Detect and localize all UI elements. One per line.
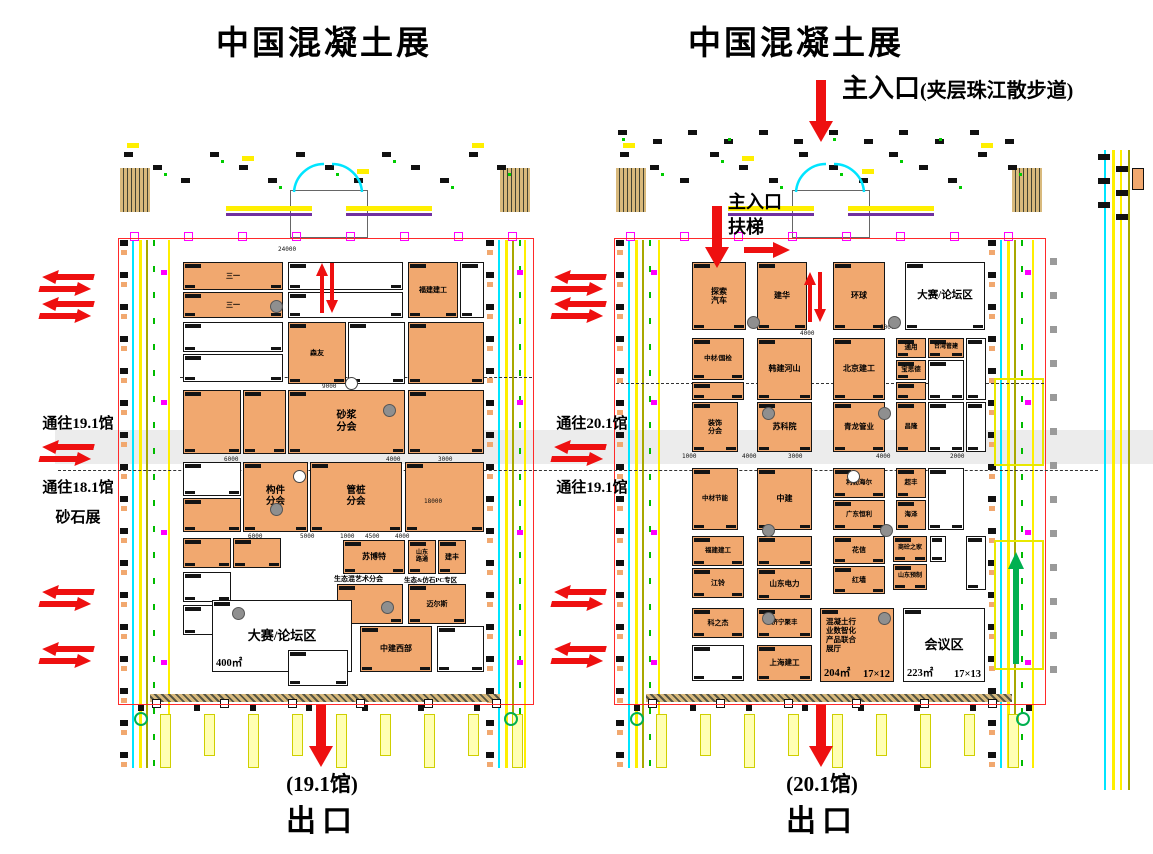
cad-clutter <box>474 705 480 711</box>
cad-clutter <box>497 165 506 170</box>
booth-area-mark <box>290 681 300 684</box>
green-mark <box>134 712 148 726</box>
pillar-white <box>847 470 860 483</box>
booth-number-mark <box>350 324 366 328</box>
booth <box>460 262 484 318</box>
booth <box>243 390 286 454</box>
booth-size-mark <box>391 313 401 316</box>
booth-label: 超丰 <box>897 469 925 497</box>
stair-block <box>1012 168 1042 212</box>
stair-block <box>616 168 646 212</box>
booth <box>233 538 281 568</box>
booth <box>966 536 986 590</box>
pillar <box>747 316 760 329</box>
booth: 会议区223㎡17×13 <box>903 608 985 682</box>
stair-block <box>120 168 150 212</box>
booth-area-mark <box>410 379 420 382</box>
dimension-label: 4000 <box>742 453 756 460</box>
up-down-arrow-pair <box>316 263 338 318</box>
pillar <box>888 316 901 329</box>
cad-clutter <box>653 139 662 144</box>
pillar <box>383 404 396 417</box>
cad-clutter <box>970 705 976 711</box>
green-mark <box>504 712 518 726</box>
booth-area-mark <box>930 525 940 528</box>
booth-number-mark <box>339 586 355 590</box>
gray-square <box>1050 530 1057 537</box>
booth-number-mark <box>290 652 306 656</box>
booth <box>757 536 812 566</box>
booth: 三一 <box>183 262 283 290</box>
booth: 中材/国检 <box>692 338 744 380</box>
cad-clutter <box>210 152 219 157</box>
inner-entrance-line2: 扶梯 <box>728 215 782 240</box>
pillar-white <box>345 377 358 390</box>
dimension-label: 3000 <box>438 456 452 463</box>
booth-label: 花信 <box>834 537 884 563</box>
booth-area: 223㎡ <box>907 665 933 680</box>
booth-label: 广东恒利 <box>834 501 884 529</box>
booth-number-mark <box>930 470 946 474</box>
booth: 通用 <box>896 338 926 358</box>
gray-square <box>1050 428 1057 435</box>
cad-clutter <box>279 186 282 189</box>
booth <box>183 538 231 568</box>
booth: 广东恒利 <box>833 500 885 530</box>
booth-label: 苏博特 <box>344 541 404 573</box>
booth: 管桩 分会 <box>310 462 402 532</box>
gray-square <box>1050 666 1057 673</box>
cad-clutter <box>794 139 803 144</box>
cad-clutter <box>661 173 664 176</box>
booth-label: 红墙 <box>834 567 884 593</box>
booth-area-mark <box>439 667 449 670</box>
cad-clutter <box>239 165 248 170</box>
booth <box>183 322 283 352</box>
booth-label: 台湾管建 <box>929 339 963 357</box>
booth: 超丰 <box>896 468 926 498</box>
booth-label: 山东预制 <box>894 565 926 589</box>
booth-area-mark <box>185 347 195 350</box>
booth: 迈尔斯 <box>408 584 466 624</box>
exit-right-word: 出口 <box>742 796 902 840</box>
booth-number-mark <box>694 384 710 388</box>
booth-label: 北京建工 <box>834 339 884 399</box>
booth-size-mark <box>336 681 346 684</box>
cad-clutter <box>948 178 957 183</box>
booth-label: 山东电力 <box>758 569 811 599</box>
gray-square <box>1050 632 1057 639</box>
booth-number-mark <box>694 647 710 651</box>
dimension-label: 6000 <box>248 533 262 540</box>
booth-number-mark <box>968 538 982 542</box>
booth <box>183 462 241 496</box>
label-to-hall-20-1: 通往20.1馆 <box>532 412 652 433</box>
booth-label: 环球 <box>834 263 884 329</box>
cad-clutter <box>634 705 640 711</box>
booth-size-mark <box>952 395 962 398</box>
pillar <box>878 407 891 420</box>
booth <box>437 626 484 672</box>
cad-clutter <box>138 705 144 711</box>
booth-label: 宝思德 <box>897 361 925 379</box>
booth-area-mark <box>290 313 300 316</box>
booth-number-mark <box>290 294 306 298</box>
booth-label: 科之杰 <box>693 609 743 637</box>
dimension-label: 4000 <box>395 533 409 540</box>
walkway-violet <box>226 213 312 216</box>
cad-clutter <box>1098 154 1110 160</box>
booth-label: 福建建工 <box>409 263 457 317</box>
cad-clutter <box>864 139 873 144</box>
booth-dimensions: 17×12 <box>863 669 890 680</box>
booth: 红墙 <box>833 566 885 594</box>
booth-area-mark <box>407 527 417 530</box>
pillar-white <box>293 470 306 483</box>
booth-number-mark <box>185 324 201 328</box>
gray-square <box>1050 496 1057 503</box>
booth: 福建建工 <box>692 536 744 566</box>
gray-square <box>1050 360 1057 367</box>
booth-area-mark <box>290 285 300 288</box>
booth: 大赛/论坛区 <box>905 262 985 330</box>
booth <box>408 390 484 454</box>
column-bar <box>876 714 887 756</box>
booth: 环球 <box>833 262 885 330</box>
cad-clutter <box>739 165 748 170</box>
booth-size-mark <box>274 449 284 452</box>
inner-entrance-line1: 主入口 <box>728 190 782 215</box>
booth-number-mark <box>185 356 201 360</box>
booth: 韩建河山 <box>757 338 812 400</box>
booth: 宝思德 <box>896 360 926 380</box>
right-arrow <box>744 240 790 265</box>
booth: 科之杰 <box>692 608 744 638</box>
cad-clutter <box>1005 139 1014 144</box>
double-swap-arrow <box>36 585 96 616</box>
booth-area-mark <box>694 395 704 398</box>
edge-cyan-line <box>1104 150 1106 790</box>
cad-clutter <box>889 152 898 157</box>
hall-20-title: 中国混凝土展 <box>688 16 904 64</box>
gray-square <box>1050 394 1057 401</box>
booth-area-mark <box>185 449 195 452</box>
booth-number-mark <box>439 628 455 632</box>
booth-label: 昌隆 <box>897 403 925 451</box>
booth <box>928 468 964 530</box>
booth: 森友 <box>288 322 346 384</box>
booth-area-mark <box>185 630 195 633</box>
cad-clutter <box>759 130 768 135</box>
booth-number-mark <box>235 540 251 544</box>
cad-clutter <box>939 138 942 141</box>
column-bar <box>380 714 391 756</box>
column-bar <box>204 714 215 756</box>
pillar <box>270 300 283 313</box>
cad-clutter <box>296 152 305 157</box>
booth: 昌隆 <box>896 402 926 452</box>
booth-number-mark <box>407 464 423 468</box>
booth <box>930 536 946 562</box>
gray-square <box>1050 564 1057 571</box>
booth-number-mark <box>759 538 775 542</box>
cad-clutter <box>1026 705 1032 711</box>
booth-area-mark <box>694 676 704 679</box>
cad-clutter <box>1132 168 1144 190</box>
booth-area-mark <box>245 449 255 452</box>
cad-clutter <box>1116 214 1128 220</box>
booth: 青龙管业 <box>833 402 885 452</box>
booth-label: 中建西部 <box>361 627 431 671</box>
walkway-bar <box>848 206 934 211</box>
booth-label: 通用 <box>897 339 925 357</box>
booth-size-mark <box>472 449 482 452</box>
dimension-label: 3000 <box>788 453 802 460</box>
booth-area-mark <box>932 557 942 560</box>
exit-right-hall: (20.1馆) <box>742 768 902 798</box>
booth <box>896 382 926 400</box>
booth-label: 装饰 分会 <box>693 403 737 451</box>
booth <box>183 354 283 382</box>
booth: 建丰 <box>438 540 466 574</box>
main-entrance-note: (夹层珠江散步道) <box>920 80 1073 102</box>
pillar <box>762 612 775 625</box>
floor-plan-page: 中国混凝土展 中国混凝土展 主入口(夹层珠江散步道) 主入口 扶梯 通往19.1… <box>0 0 1153 854</box>
booth-label: 森友 <box>289 323 345 383</box>
green-up-arrow <box>1008 552 1024 669</box>
cad-clutter <box>710 152 719 157</box>
double-swap-arrow <box>548 297 608 328</box>
column-bar <box>656 714 667 768</box>
booth-number-mark <box>930 362 946 366</box>
entrance-fan-arc <box>332 160 364 199</box>
dimension-label: 4000 <box>800 330 814 337</box>
booth-label: 砂浆 分会 <box>289 391 404 453</box>
booth-size-mark <box>219 563 229 566</box>
dimension-label: 1000 <box>682 453 696 460</box>
booth-size-mark <box>952 525 962 528</box>
booth: 江铃 <box>692 568 744 598</box>
booth-size-mark <box>391 619 401 622</box>
booth: 山东 路通 <box>408 540 436 574</box>
booth <box>288 292 403 318</box>
booth: 山东电力 <box>757 568 812 600</box>
booth-area-mark <box>185 563 195 566</box>
cad-clutter <box>268 178 277 183</box>
column-bar <box>424 714 435 768</box>
booth-label: 大赛/论坛区 <box>906 263 984 329</box>
booth-area-mark <box>185 597 195 600</box>
booth-size-mark <box>269 563 279 566</box>
booth-label: 福建建工 <box>693 537 743 565</box>
booth-label: 江铃 <box>693 569 743 597</box>
dimension-label: 4000 <box>386 456 400 463</box>
cad-clutter <box>194 705 200 711</box>
booth-number-mark <box>462 264 478 268</box>
booth <box>692 645 744 681</box>
booth <box>966 338 986 400</box>
walkway-bar <box>226 206 312 211</box>
booth-size-mark <box>732 395 742 398</box>
walkway-violet <box>346 213 432 216</box>
booth-area-mark <box>235 563 245 566</box>
booth-dimensions: 17×13 <box>954 669 981 680</box>
booth-number-mark <box>932 538 942 542</box>
booth: 三一 <box>183 292 283 318</box>
cad-clutter <box>1116 166 1128 172</box>
booth-size-mark <box>472 667 482 670</box>
booth: 海泽 <box>896 500 926 530</box>
column-bar <box>160 714 171 768</box>
booth-size-mark <box>229 491 239 494</box>
cad-clutter <box>690 705 696 711</box>
cad-clutter <box>127 143 139 148</box>
booth-area: 400㎡ <box>216 655 242 670</box>
cad-clutter <box>221 160 224 163</box>
booth-size-mark <box>952 447 962 450</box>
booth-label: 三一 <box>184 263 282 289</box>
cad-clutter <box>959 186 962 189</box>
green-mark <box>630 712 644 726</box>
double-swap-arrow <box>548 642 608 673</box>
column-bar <box>336 714 347 768</box>
booth: 台湾管建 <box>928 338 964 358</box>
column-bar <box>292 714 303 756</box>
exit-left-hall: (19.1馆) <box>242 768 402 798</box>
booth-area-mark <box>968 585 978 588</box>
booth-label: 三一 <box>184 293 282 317</box>
booth-label: 上海建工 <box>758 646 811 680</box>
cad-clutter <box>769 178 778 183</box>
cad-clutter <box>650 165 659 170</box>
booth-number-mark <box>410 324 426 328</box>
dimension-label: 5000 <box>300 533 314 540</box>
column-bar <box>964 714 975 756</box>
edge-olive-line <box>1128 150 1130 790</box>
booth-size-mark <box>391 285 401 288</box>
dimension-label: 6000 <box>224 456 238 463</box>
cad-clutter <box>472 143 484 148</box>
booth-area-mark <box>410 449 420 452</box>
double-swap-arrow <box>36 440 96 471</box>
entrance-fan-arc <box>794 160 826 199</box>
booth-label: 中建 <box>758 469 811 529</box>
cad-clutter <box>440 178 449 183</box>
booth-label: 商砼之家 <box>894 537 926 561</box>
pillar <box>880 524 893 537</box>
booth-number-mark <box>245 392 261 396</box>
up-down-arrow-pair <box>804 272 826 327</box>
booth-area-mark <box>185 527 195 530</box>
booth-label: 青龙管业 <box>834 403 884 451</box>
edge-yellow-line <box>1112 150 1115 790</box>
booth-area-mark <box>462 313 472 316</box>
booth-area-mark <box>185 491 195 494</box>
dimension-label: 9000 <box>322 383 336 390</box>
gray-square <box>1050 292 1057 299</box>
cad-clutter <box>1116 190 1128 196</box>
walkway-bar <box>346 206 432 211</box>
booth-size-mark <box>472 527 482 530</box>
double-swap-arrow <box>36 297 96 328</box>
entrance-fan-arc <box>834 160 866 199</box>
booth-size-mark <box>271 377 281 380</box>
booth: 装饰 分会 <box>692 402 738 452</box>
main-entrance-text: 主入口 <box>842 74 920 103</box>
cad-clutter <box>742 156 754 161</box>
booth-area-mark <box>968 447 978 450</box>
booth: 中材节能 <box>692 468 738 530</box>
booth <box>348 322 405 384</box>
down-arrow <box>806 705 836 772</box>
booth: 北京建工 <box>833 338 885 400</box>
cad-clutter <box>250 705 256 711</box>
booth <box>408 322 484 384</box>
column-bar <box>920 714 931 768</box>
booth-size-mark <box>229 449 239 452</box>
booth-label: 韩建河山 <box>758 339 811 399</box>
booth <box>288 262 403 290</box>
cad-clutter <box>618 130 627 135</box>
booth-number-mark <box>968 404 982 408</box>
cad-clutter <box>780 186 783 189</box>
down-arrow <box>306 705 336 772</box>
booth-number-mark <box>290 264 306 268</box>
booth-size-mark <box>393 379 403 382</box>
main-entrance-label: 主入口(夹层珠江散步道) <box>842 68 1073 105</box>
booth: 花信 <box>833 536 885 564</box>
gray-square <box>1050 258 1057 265</box>
cad-clutter <box>393 160 396 163</box>
booth-number-mark <box>185 540 201 544</box>
booth-number-mark <box>185 574 201 578</box>
cad-clutter <box>1098 178 1110 184</box>
cad-clutter <box>164 173 167 176</box>
cad-clutter <box>799 152 808 157</box>
gray-square <box>1050 326 1057 333</box>
booth-label: 管桩 分会 <box>311 463 401 531</box>
cad-clutter <box>181 178 190 183</box>
cad-clutter <box>469 152 478 157</box>
cad-clutter <box>242 156 254 161</box>
cad-clutter <box>153 165 162 170</box>
booth-size-mark <box>271 347 281 350</box>
pillar <box>270 503 283 516</box>
dimension-label: 18000 <box>424 498 442 505</box>
column-bar <box>700 714 711 756</box>
cad-clutter <box>411 165 420 170</box>
booth: 中建西部 <box>360 626 432 672</box>
booth-area-mark <box>968 395 978 398</box>
booth <box>928 402 964 452</box>
cad-clutter <box>970 130 979 135</box>
booth-area-mark <box>898 395 908 398</box>
cad-clutter <box>1098 202 1110 208</box>
exit-left-word: 出口 <box>242 796 402 840</box>
booth-label: 山东 路通 <box>409 541 435 573</box>
stair-block <box>500 168 530 212</box>
label-sand-expo: 砂石展 <box>18 506 138 527</box>
cad-clutter <box>622 138 625 141</box>
double-swap-arrow <box>548 440 608 471</box>
cad-clutter <box>1019 173 1022 176</box>
cad-clutter <box>978 152 987 157</box>
booth-label: 中材节能 <box>693 469 737 529</box>
cad-clutter <box>451 186 454 189</box>
booth: 建华 <box>757 262 807 330</box>
double-swap-arrow <box>36 642 96 673</box>
booth-area-mark <box>930 395 940 398</box>
